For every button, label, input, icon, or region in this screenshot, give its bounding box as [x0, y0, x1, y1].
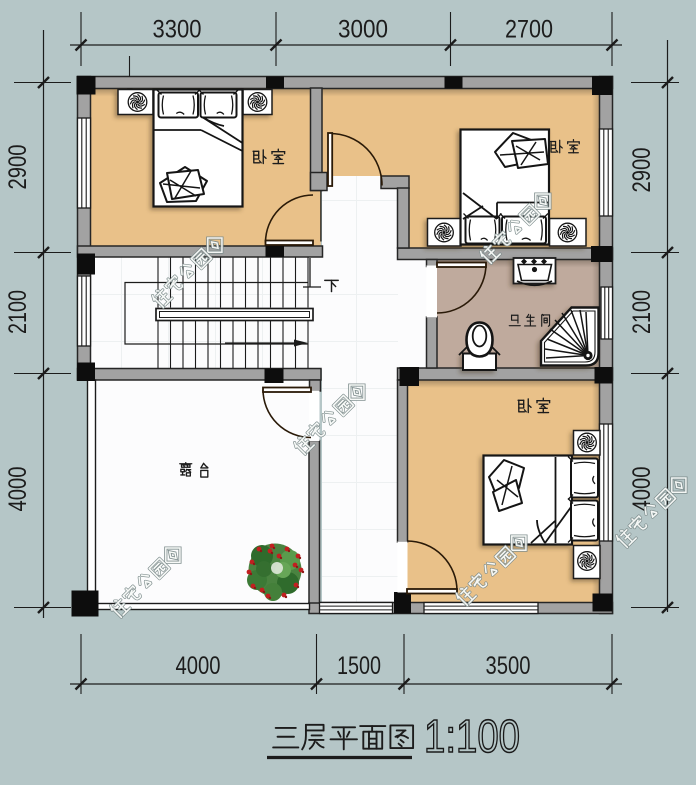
- svg-text:3000: 3000: [338, 16, 388, 44]
- svg-text:1:100: 1:100: [424, 710, 520, 762]
- svg-text:3300: 3300: [153, 16, 202, 44]
- svg-text:2900: 2900: [4, 145, 32, 190]
- svg-text:4000: 4000: [4, 467, 32, 512]
- svg-text:2100: 2100: [628, 290, 656, 334]
- svg-text:1500: 1500: [337, 652, 381, 680]
- svg-text:2100: 2100: [4, 290, 32, 334]
- svg-text:2900: 2900: [628, 148, 656, 193]
- svg-text:4000: 4000: [176, 652, 221, 680]
- svg-text:2700: 2700: [505, 16, 553, 44]
- svg-text:3500: 3500: [486, 652, 531, 680]
